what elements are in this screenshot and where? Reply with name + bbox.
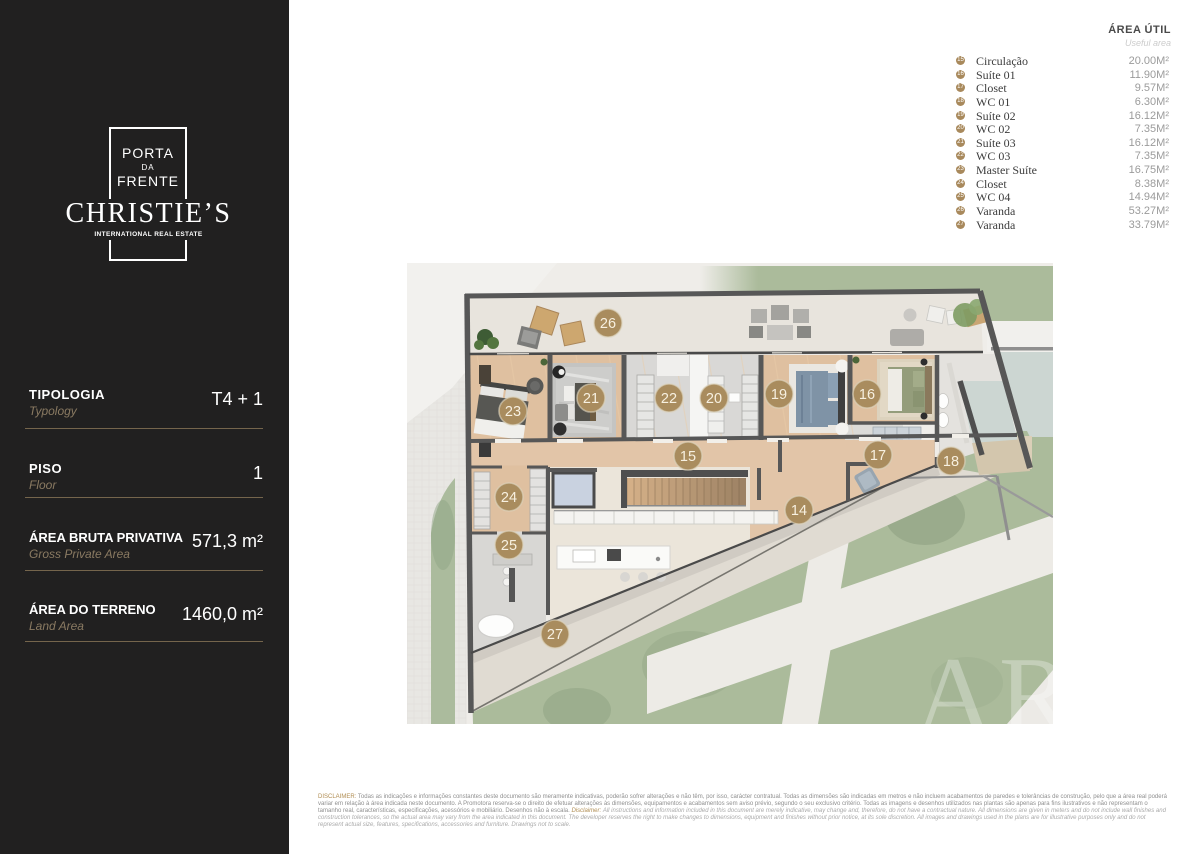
svg-text:15: 15: [680, 449, 696, 465]
svg-text:27: 27: [547, 627, 563, 643]
svg-text:ARE: ARE: [915, 636, 1053, 724]
svg-text:22: 22: [661, 391, 677, 407]
svg-text:21: 21: [583, 391, 599, 407]
svg-text:20: 20: [706, 391, 722, 407]
svg-text:18: 18: [943, 454, 959, 470]
svg-text:25: 25: [501, 538, 517, 554]
svg-text:19: 19: [771, 387, 787, 403]
svg-text:24: 24: [501, 490, 517, 506]
svg-text:23: 23: [505, 404, 521, 420]
svg-text:14: 14: [791, 503, 807, 519]
svg-text:17: 17: [870, 448, 886, 464]
svg-text:16: 16: [859, 387, 875, 403]
svg-text:26: 26: [600, 316, 616, 332]
